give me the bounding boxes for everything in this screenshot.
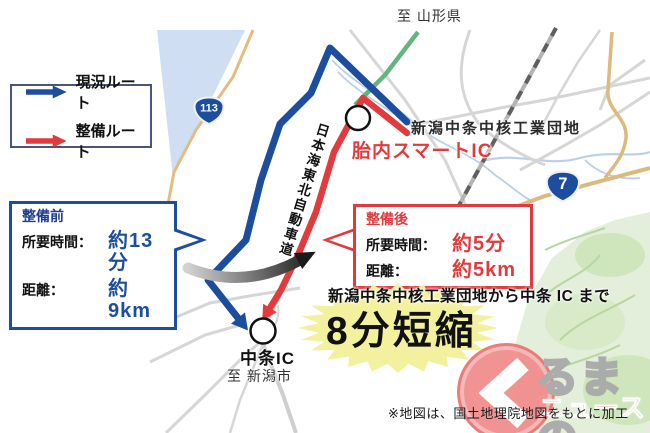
svg-text:7: 7	[558, 175, 567, 193]
before-improvement-callout: 整備前 所要時間： 約13分 距離： 約9km	[9, 201, 177, 330]
legend-improved-route-label: 整備ルート	[76, 120, 150, 162]
improved-route-arrow-icon	[24, 133, 68, 149]
time-saved-highlight: 8分短縮	[326, 300, 477, 356]
svg-text:113: 113	[200, 103, 218, 115]
after-title: 整備後	[366, 211, 520, 229]
expressway-north	[355, 32, 418, 105]
change-arrow	[188, 252, 316, 278]
map-attribution: ※地図は、国土地理院地図をもとに加工	[388, 403, 629, 422]
legend-current-route: 現況ルート	[24, 71, 150, 113]
route-legend: 現況ルート 整備ルート	[10, 84, 152, 148]
nakajo-ic-marker	[251, 319, 276, 344]
industrial-park-label: 新潟中条中核工業団地	[411, 117, 581, 138]
before-time-label: 所要時間：	[22, 235, 108, 250]
current-route-arrow-icon	[24, 84, 68, 100]
after-distance-label: 距離：	[366, 264, 452, 279]
before-distance-label: 距離：	[22, 283, 108, 298]
tainai-smart-ic-label: 胎内スマートIC	[352, 136, 492, 163]
after-time-value: 約5分	[452, 233, 506, 255]
before-distance-value: 約9km	[108, 278, 164, 322]
after-improvement-callout: 整備後 所要時間： 約5分 距離： 約5km	[353, 204, 533, 289]
before-title: 整備前	[22, 208, 164, 226]
before-time-value: 約13分	[108, 230, 164, 274]
to-yamagata-label: 至 山形県	[397, 6, 462, 26]
infographic-map: 113 7 至 山形県 日本海東北自動車道 新潟中条中核工業団地 胎内スマートI…	[0, 0, 650, 433]
route-7-shield: 7	[547, 172, 579, 202]
to-niigata-label: 至 新潟市	[227, 366, 292, 386]
after-time-label: 所要時間：	[366, 238, 452, 253]
legend-improved-route: 整備ルート	[24, 120, 150, 162]
after-distance-value: 約5km	[452, 259, 516, 281]
legend-current-route-label: 現況ルート	[76, 71, 150, 113]
tainai-smart-ic-marker	[346, 106, 370, 130]
